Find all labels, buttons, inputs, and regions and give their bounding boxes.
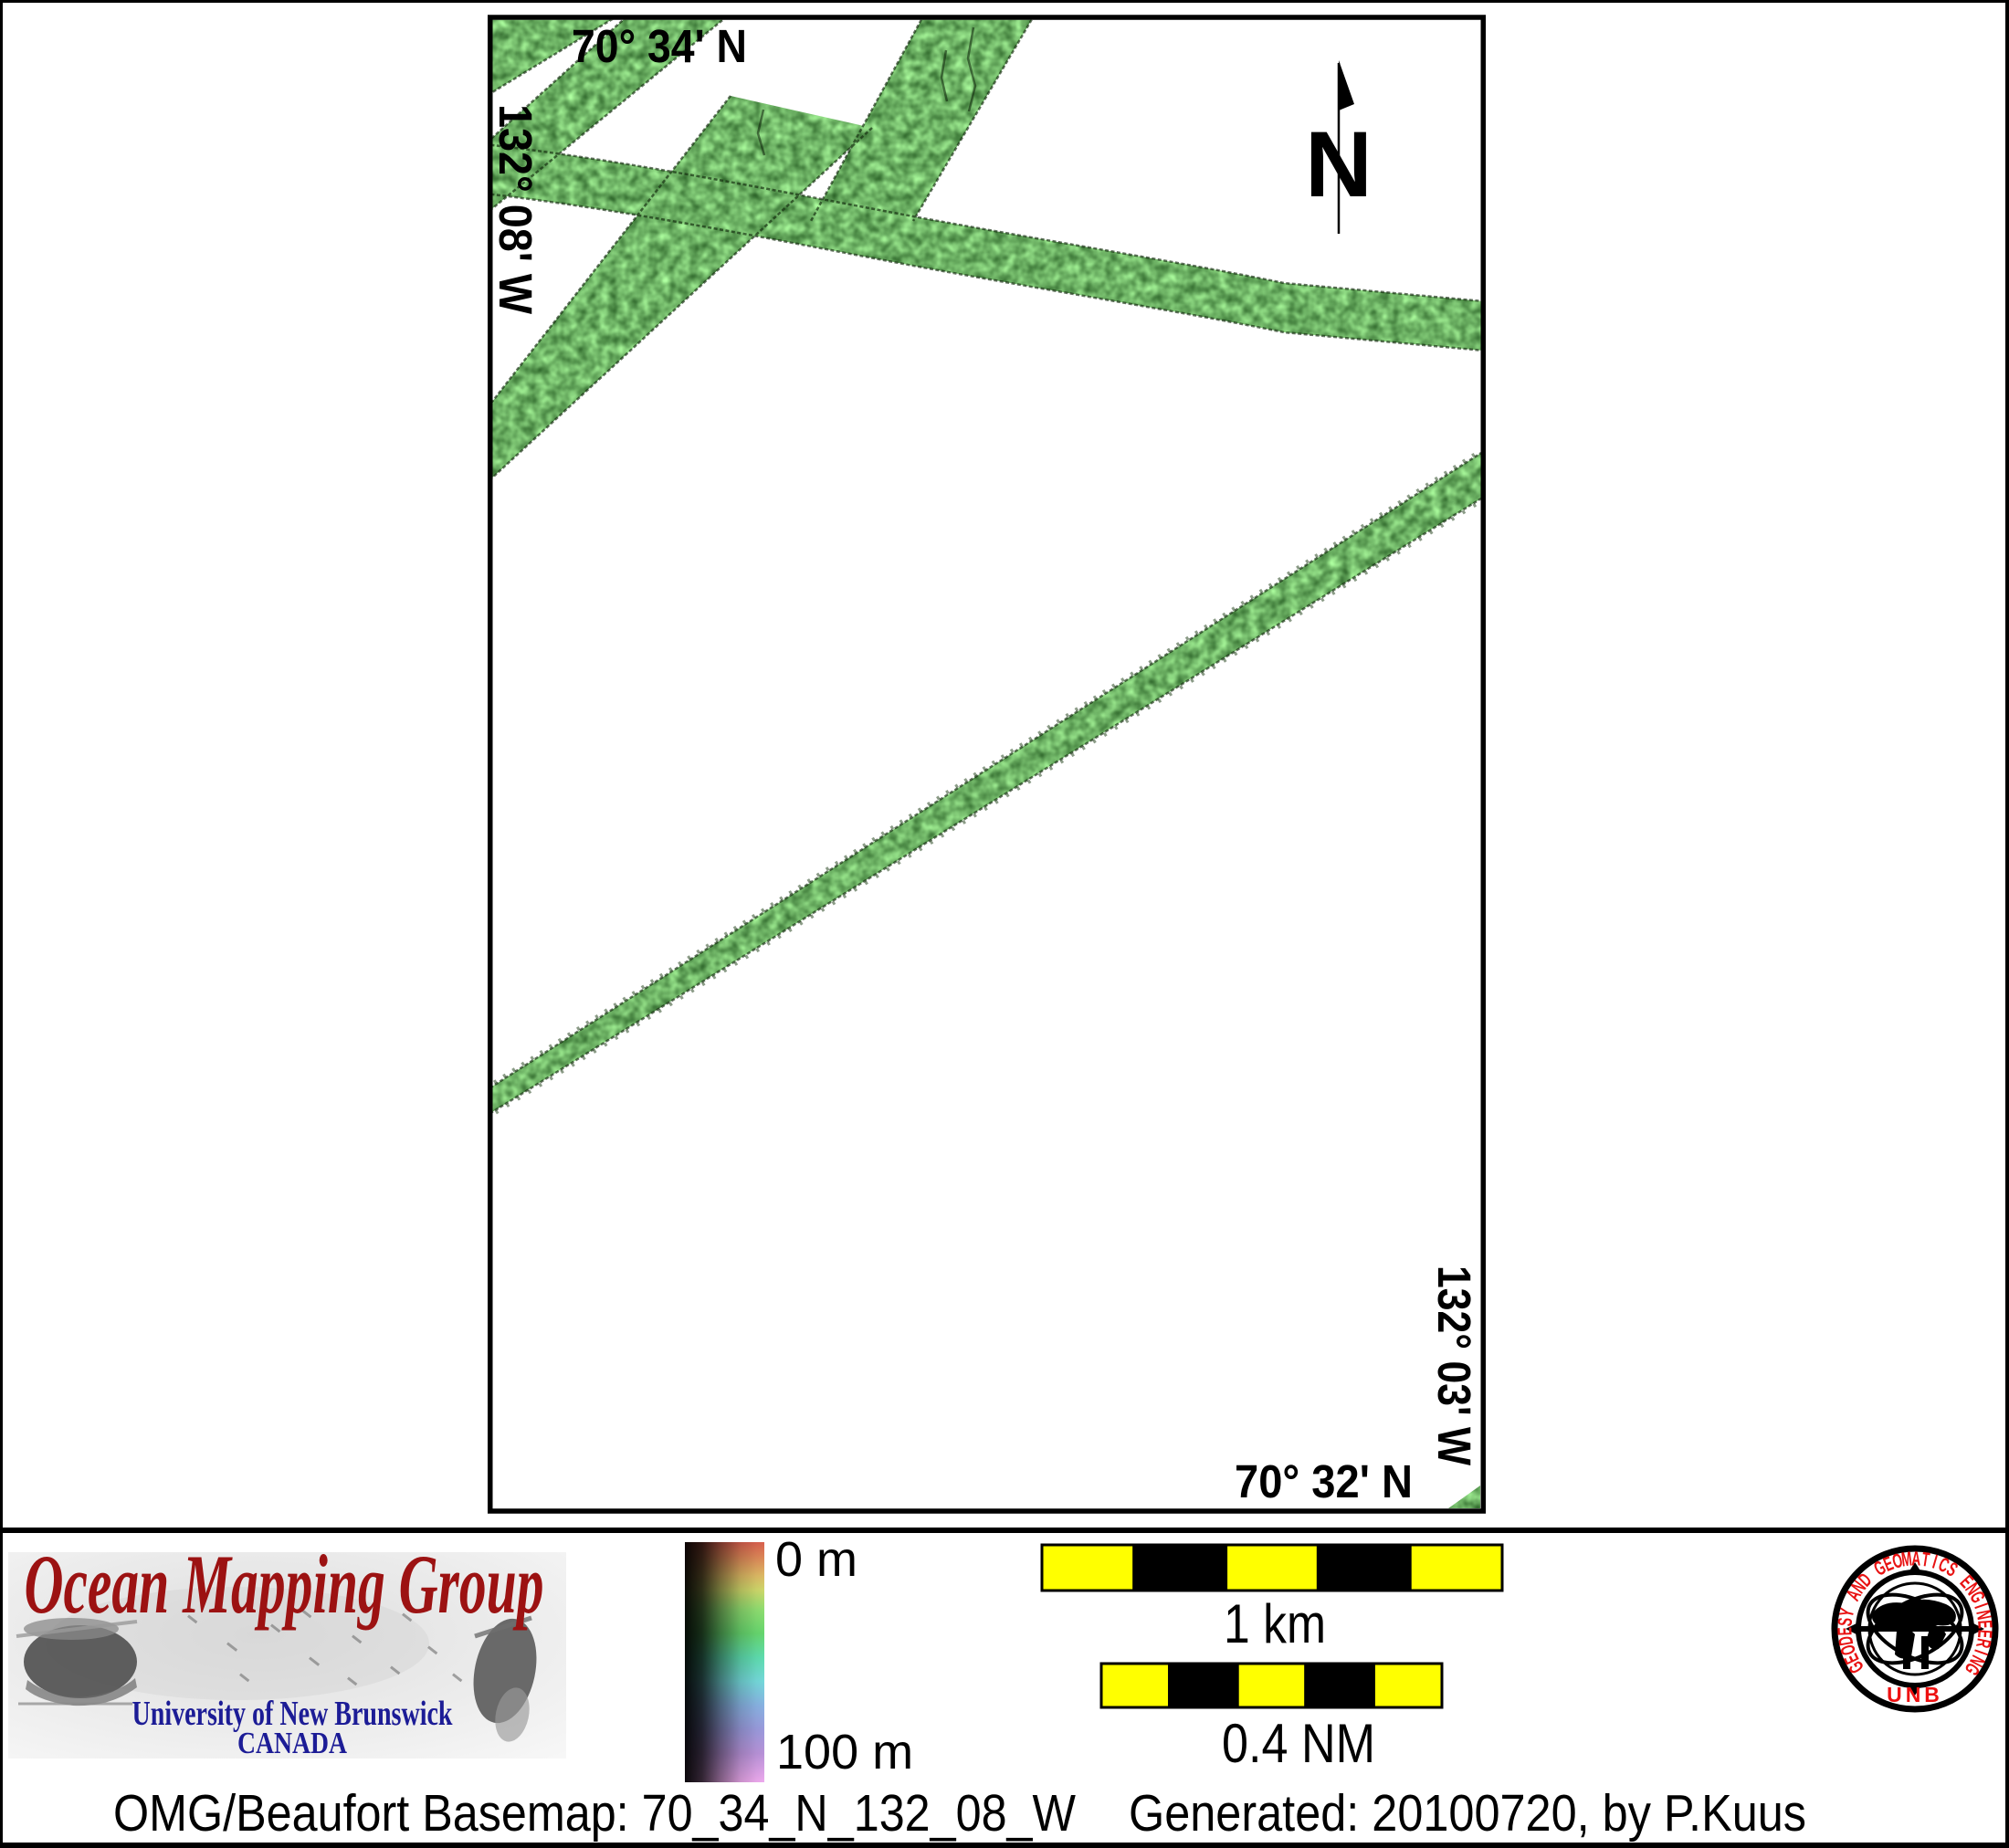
- svg-text:Ocean Mapping Group: Ocean Mapping Group: [25, 1538, 544, 1631]
- svg-text:70° 34' N: 70° 34' N: [572, 20, 747, 72]
- svg-text:1 km: 1 km: [1224, 1593, 1326, 1654]
- svg-text:OMG/Beaufort Basemap: 70_34_N_: OMG/Beaufort Basemap: 70_34_N_132_08_W G…: [113, 1784, 1806, 1843]
- svg-text:E: E: [1973, 1620, 1997, 1630]
- svg-text:N: N: [1305, 112, 1373, 216]
- svg-text:0.4 NM: 0.4 NM: [1222, 1713, 1375, 1774]
- svg-text:70° 32' N: 70° 32' N: [1235, 1455, 1413, 1507]
- svg-text:132° 03' W: 132° 03' W: [1428, 1265, 1480, 1466]
- svg-text:132° 08' W: 132° 08' W: [489, 104, 542, 315]
- svg-text:E: E: [1833, 1627, 1856, 1636]
- svg-text:CANADA: CANADA: [237, 1727, 347, 1760]
- svg-text:UNB: UNB: [1887, 1683, 1943, 1706]
- svg-text:100 m: 100 m: [776, 1725, 913, 1780]
- svg-text:0 m: 0 m: [775, 1532, 857, 1587]
- svg-text:A: A: [1911, 1547, 1920, 1570]
